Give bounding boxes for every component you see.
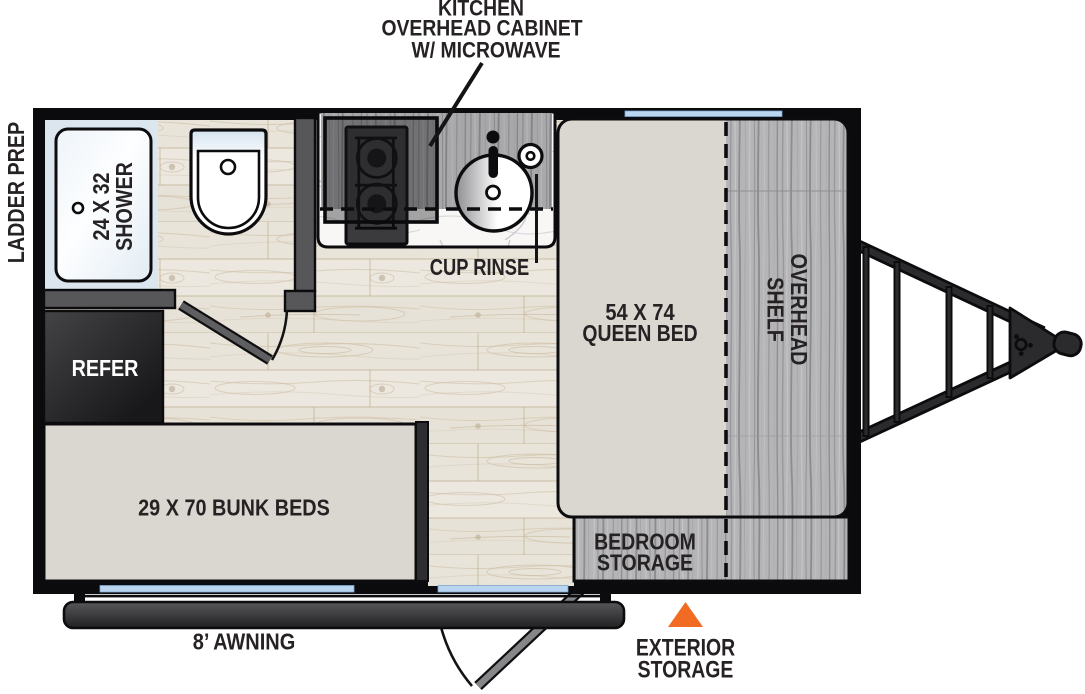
svg-text:SHOWER: SHOWER bbox=[110, 162, 137, 251]
svg-text:STORAGE: STORAGE bbox=[597, 549, 693, 576]
svg-text:SHELF: SHELF bbox=[762, 277, 789, 342]
svg-text:W/ MICROWAVE: W/ MICROWAVE bbox=[411, 38, 560, 62]
svg-text:29 X 70 BUNK BEDS: 29 X 70 BUNK BEDS bbox=[138, 495, 330, 521]
svg-text:8’ AWNING: 8’ AWNING bbox=[193, 628, 296, 655]
svg-text:OVERHEAD CABINET: OVERHEAD CABINET bbox=[381, 16, 582, 40]
svg-text:REFER: REFER bbox=[72, 354, 139, 381]
svg-text:STORAGE: STORAGE bbox=[638, 656, 734, 683]
svg-text:QUEEN BED: QUEEN BED bbox=[582, 320, 697, 346]
svg-text:CUP RINSE: CUP RINSE bbox=[430, 255, 529, 281]
svg-text:LADDER PREP: LADDER PREP bbox=[2, 122, 29, 263]
